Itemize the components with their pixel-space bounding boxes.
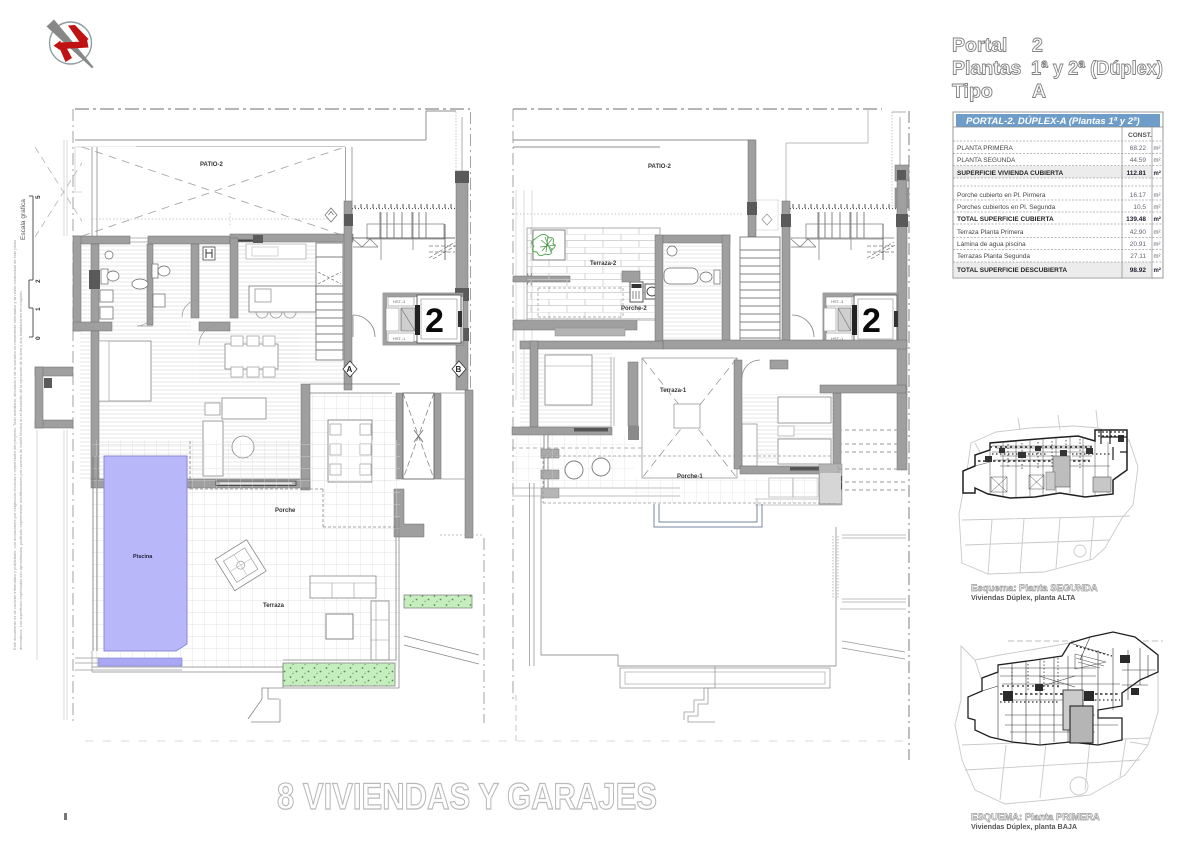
svg-text:m²: m² xyxy=(1154,254,1161,260)
svg-text:Porche cubierto en Pl. Pirmera: Porche cubierto en Pl. Pirmera xyxy=(957,192,1046,199)
svg-text:CONST.: CONST. xyxy=(1128,132,1152,139)
svg-text:2: 2 xyxy=(425,302,444,340)
svg-text:HST.-1: HST.-1 xyxy=(393,336,406,341)
svg-text:2: 2 xyxy=(862,302,881,340)
svg-text:Terraza-1: Terraza-1 xyxy=(660,388,687,394)
svg-text:Portal: Portal xyxy=(952,35,1007,57)
svg-text:42.90: 42.90 xyxy=(1130,229,1147,236)
svg-text:TOTAL SUPERFICIE DESCUBIERTA: TOTAL SUPERFICIE DESCUBIERTA xyxy=(957,267,1067,274)
svg-text:PLANTA PRIMERA: PLANTA PRIMERA xyxy=(957,145,1014,152)
svg-text:Plantas: Plantas xyxy=(952,58,1022,80)
svg-text:m²: m² xyxy=(1154,242,1161,248)
svg-text:B: B xyxy=(456,365,462,374)
svg-text:PLANTA SEGUNDA: PLANTA SEGUNDA xyxy=(957,157,1016,164)
svg-text:A: A xyxy=(347,365,353,374)
svg-text:139.48: 139.48 xyxy=(1126,216,1146,223)
svg-text:Piscina: Piscina xyxy=(133,554,153,560)
svg-text:HST.-3: HST.-3 xyxy=(393,299,406,304)
svg-text:m²: m² xyxy=(1154,146,1161,152)
svg-text:2: 2 xyxy=(1032,35,1043,57)
svg-text:m²: m² xyxy=(1154,170,1161,177)
svg-text:112.81: 112.81 xyxy=(1126,170,1146,177)
svg-text:A: A xyxy=(1032,81,1046,103)
svg-text:68.22: 68.22 xyxy=(1130,145,1147,152)
svg-text:Escala grafica: Escala grafica xyxy=(20,199,27,240)
svg-text:Porche-2: Porche-2 xyxy=(621,306,647,312)
svg-text:8 VIVIENDAS Y GARAJES: 8 VIVIENDAS Y GARAJES xyxy=(277,776,657,817)
svg-text:m²: m² xyxy=(1154,216,1161,223)
svg-text:Terraza: Terraza xyxy=(263,603,285,609)
svg-text:16.17: 16.17 xyxy=(1130,192,1147,199)
svg-text:HST.-3: HST.-3 xyxy=(831,299,844,304)
svg-text:m²: m² xyxy=(1154,193,1161,199)
svg-text:Lámina de agua piscina: Lámina de agua piscina xyxy=(957,241,1026,248)
svg-text:m²: m² xyxy=(1154,205,1161,211)
svg-text:Terrazas Planta Segunda: Terrazas Planta Segunda xyxy=(957,253,1030,260)
svg-text:27.11: 27.11 xyxy=(1130,253,1146,260)
svg-text:Viviendas Dúplex, planta BAJA: Viviendas Dúplex, planta BAJA xyxy=(971,822,1077,831)
svg-text:1ª y 2ª (Dúplex): 1ª y 2ª (Dúplex) xyxy=(1031,58,1163,80)
svg-text:Porche: Porche xyxy=(275,508,296,514)
svg-text:Viviendas Dúplex, planta ALTA: Viviendas Dúplex, planta ALTA xyxy=(971,593,1075,602)
svg-text:m²: m² xyxy=(1154,230,1161,236)
svg-text:1: 1 xyxy=(35,307,42,311)
svg-text:44.59: 44.59 xyxy=(1130,157,1147,164)
svg-text:PORTAL-2. DÚPLEX-A (Plantas 1ª: PORTAL-2. DÚPLEX-A (Plantas 1ª y 2ª) xyxy=(966,115,1140,127)
svg-text:0: 0 xyxy=(35,336,42,340)
svg-text:20.91: 20.91 xyxy=(1130,241,1147,248)
svg-text:Tipo: Tipo xyxy=(952,81,993,103)
svg-text:Terraza-2: Terraza-2 xyxy=(590,261,617,267)
svg-text:2: 2 xyxy=(35,279,42,283)
svg-text:TOTAL SUPERFICIE CUBIERTA: TOTAL SUPERFICIE CUBIERTA xyxy=(957,216,1054,223)
svg-text:Porches cubiertos en Pl. Segun: Porches cubiertos en Pl. Segunda xyxy=(957,204,1056,211)
svg-text:Este documento es de carácter: Este documento es de carácter informativ… xyxy=(12,239,17,650)
svg-text:Terraza Planta Primera: Terraza Planta Primera xyxy=(957,229,1024,236)
svg-text:98.92: 98.92 xyxy=(1130,267,1147,274)
svg-text:10,5: 10,5 xyxy=(1133,204,1146,211)
svg-text:m²: m² xyxy=(1154,158,1161,164)
svg-text:PATIO-2: PATIO-2 xyxy=(648,164,671,170)
svg-text:PATIO-2: PATIO-2 xyxy=(200,162,223,168)
svg-text:decorativos. Las superficies e: decorativos. Las superficies expresadas … xyxy=(18,290,23,650)
svg-text:m²: m² xyxy=(1154,267,1161,274)
svg-text:Porche-1: Porche-1 xyxy=(677,474,703,480)
svg-text:5: 5 xyxy=(35,195,42,199)
svg-text:SUPERFICIE VIVIENDA CUBIERTA: SUPERFICIE VIVIENDA CUBIERTA xyxy=(957,170,1063,177)
